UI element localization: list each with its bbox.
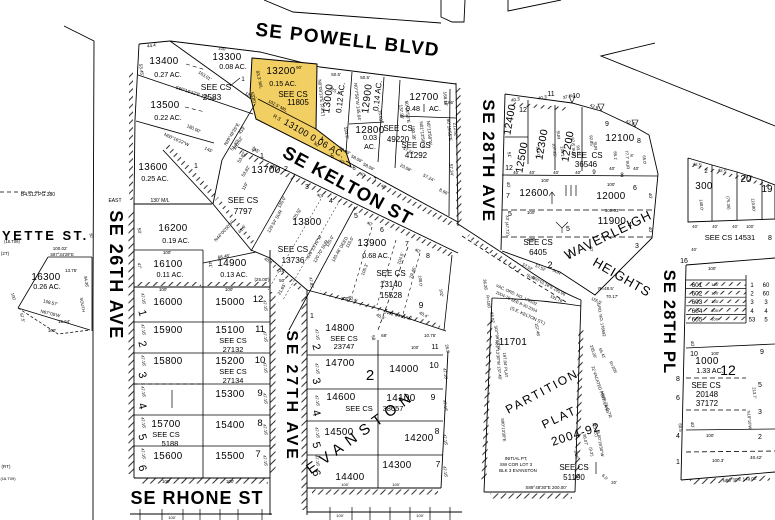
svg-text:12: 12 (505, 165, 513, 172)
svg-text:13900: 13900 (357, 238, 386, 249)
svg-text:SEE CS: SEE CS (201, 82, 232, 92)
svg-text:R=48.5': R=48.5' (598, 286, 614, 291)
svg-text:100': 100' (607, 182, 616, 187)
svg-text:6405: 6405 (529, 248, 547, 257)
svg-text:15300: 15300 (215, 389, 244, 400)
svg-text:SW COR LOT 3: SW COR LOT 3 (500, 462, 533, 467)
svg-text:100': 100' (162, 479, 171, 484)
svg-text:15400: 15400 (215, 420, 244, 431)
svg-text:15500: 15500 (215, 451, 244, 462)
svg-text:40': 40' (553, 170, 559, 175)
svg-text:114.0': 114.0' (536, 146, 542, 158)
svg-text:109.1': 109.1' (560, 146, 566, 158)
svg-text:100': 100' (168, 515, 176, 520)
svg-text:100': 100' (341, 296, 350, 301)
svg-text:13500: 13500 (150, 100, 179, 111)
svg-text:12: 12 (519, 107, 527, 114)
svg-text:100.03': 100.03' (605, 208, 620, 213)
svg-text:2: 2 (758, 434, 762, 441)
svg-text:BLK 3 EVANSTON: BLK 3 EVANSTON (499, 468, 537, 473)
svg-text:8': 8' (630, 153, 633, 158)
svg-text:1: 1 (194, 163, 198, 170)
svg-text:50': 50' (279, 278, 285, 283)
svg-text:S87°34'29"E: S87°34'29"E (50, 252, 74, 257)
svg-text:20': 20' (611, 480, 617, 485)
svg-text:3: 3 (305, 184, 309, 191)
svg-text:7797: 7797 (234, 206, 253, 216)
svg-text:40': 40' (513, 170, 519, 175)
svg-text:2: 2 (366, 367, 374, 384)
svg-text:10: 10 (429, 360, 439, 370)
svg-text:100': 100' (48, 328, 57, 333)
svg-text:20148: 20148 (696, 390, 719, 399)
svg-text:12: 12 (253, 294, 264, 305)
svg-text:0.68 AC.: 0.68 AC. (362, 251, 390, 260)
svg-text:85.1': 85.1' (613, 151, 619, 161)
svg-text:13600: 13600 (138, 162, 167, 173)
svg-text:B4.512 PG.380: B4.512 PG.380 (21, 192, 55, 198)
svg-text:27132: 27132 (223, 345, 244, 354)
svg-text:INITIAL PT,: INITIAL PT, (505, 456, 528, 461)
svg-text:100': 100' (336, 513, 344, 518)
svg-text:0.13 AC.: 0.13 AC. (220, 270, 248, 279)
svg-text:60: 60 (763, 283, 770, 289)
svg-text:AC.: AC. (429, 104, 441, 113)
svg-text:11805: 11805 (287, 98, 309, 107)
svg-text:6: 6 (380, 227, 384, 234)
svg-text:0.19 AC.: 0.19 AC. (162, 236, 190, 245)
svg-text:14800: 14800 (325, 323, 354, 334)
svg-text:100': 100' (392, 482, 400, 487)
svg-text:51': 51' (507, 151, 513, 158)
svg-text:8: 8 (257, 418, 262, 429)
svg-text:130' M/L: 130' M/L (150, 198, 169, 204)
svg-text:16000: 16000 (153, 297, 182, 308)
svg-text:13200: 13200 (266, 66, 295, 77)
svg-text:15900: 15900 (153, 325, 182, 336)
svg-text:53': 53' (137, 227, 143, 234)
svg-text:9: 9 (419, 300, 424, 310)
svg-text:16: 16 (680, 258, 688, 265)
svg-text:14400: 14400 (335, 472, 364, 483)
svg-text:12700: 12700 (409, 92, 438, 103)
svg-text:1: 1 (260, 153, 264, 160)
svg-text:100': 100' (411, 345, 419, 350)
svg-text:14300: 14300 (382, 460, 411, 471)
svg-text:70.17': 70.17' (606, 294, 618, 299)
svg-text:15600: 15600 (153, 451, 182, 462)
svg-text:SE 27TH AVE: SE 27TH AVE (283, 330, 300, 461)
svg-text:8.66': 8.66' (444, 100, 454, 105)
svg-text:CS: CS (591, 151, 602, 160)
svg-text:100': 100' (163, 250, 172, 255)
svg-text:12600: 12600 (519, 188, 548, 199)
svg-text:47': 47' (137, 262, 143, 269)
svg-text:SEE CS: SEE CS (345, 404, 373, 413)
svg-text:140.0': 140.0' (699, 199, 705, 211)
svg-text:40': 40' (690, 421, 696, 428)
svg-text:YETTE ST.: YETTE ST. (2, 228, 89, 243)
svg-text:0.27 AC.: 0.27 AC. (154, 70, 182, 79)
svg-text:37172: 37172 (696, 399, 719, 408)
svg-text:14000: 14000 (389, 364, 418, 375)
svg-text:604: 604 (692, 308, 703, 315)
svg-text:40': 40' (648, 192, 654, 199)
svg-text:100': 100' (416, 513, 424, 518)
svg-text:11: 11 (547, 91, 554, 98)
svg-text:40': 40' (529, 170, 535, 175)
svg-text:8: 8 (676, 376, 680, 383)
svg-text:100': 100' (711, 282, 719, 287)
svg-text:SUR: SUR (593, 141, 599, 150)
svg-text:100': 100' (541, 178, 550, 183)
svg-text:6: 6 (676, 395, 680, 402)
svg-text:60: 60 (763, 292, 770, 298)
svg-text:8: 8 (426, 253, 430, 260)
svg-text:213.7': 213.7' (752, 387, 758, 399)
svg-text:603: 603 (692, 299, 703, 306)
svg-text:100.0': 100.0' (418, 275, 424, 287)
svg-text:0.22 AC.: 0.22 AC. (154, 113, 182, 122)
svg-text:41': 41' (208, 261, 214, 268)
svg-text:15200: 15200 (215, 356, 244, 367)
svg-text:SEE CS 14531: SEE CS 14531 (705, 233, 755, 242)
svg-text:0.08 AC.: 0.08 AC. (219, 62, 247, 71)
svg-text:40': 40' (648, 226, 654, 233)
svg-text:40': 40' (712, 224, 718, 229)
svg-text:SE 28TH AVE: SE 28TH AVE (479, 99, 498, 222)
svg-text:S89°48'30"E 200.00': S89°48'30"E 200.00' (525, 485, 566, 490)
svg-text:27134: 27134 (223, 376, 244, 385)
svg-text:65.0': 65.0' (642, 155, 648, 165)
svg-text:9: 9 (760, 349, 764, 356)
svg-text:SEE CS: SEE CS (691, 381, 720, 390)
svg-text:601: 601 (692, 282, 703, 289)
svg-text:SE 26TH AVE: SE 26TH AVE (106, 210, 126, 340)
svg-text:53: 53 (749, 317, 756, 323)
svg-text:23747: 23747 (334, 342, 355, 351)
svg-text:40': 40' (575, 170, 581, 175)
svg-text:8: 8 (637, 138, 641, 145)
svg-text:SEE CS: SEE CS (219, 367, 247, 376)
svg-text:SEE CS: SEE CS (152, 430, 180, 439)
svg-text:15100: 15100 (215, 325, 244, 336)
svg-text:8: 8 (768, 235, 772, 242)
svg-text:3: 3 (758, 409, 762, 416)
svg-text:(16.T09): (16.T09) (0, 476, 16, 481)
svg-text:5: 5 (566, 226, 570, 233)
svg-text:40': 40' (692, 224, 698, 229)
svg-text:9: 9 (605, 121, 609, 128)
svg-text:100': 100' (706, 433, 715, 438)
svg-text:40': 40' (609, 166, 615, 171)
svg-text:0.11 AC.: 0.11 AC. (156, 270, 183, 279)
svg-text:14200: 14200 (404, 433, 433, 444)
svg-text:11: 11 (431, 344, 438, 351)
svg-text:11701: 11701 (499, 337, 528, 348)
svg-text:40': 40' (732, 224, 738, 229)
svg-text:6: 6 (633, 185, 637, 192)
svg-text:68': 68' (381, 333, 387, 338)
svg-text:15000: 15000 (215, 297, 244, 308)
svg-text:10.75': 10.75' (424, 333, 436, 338)
svg-text:100': 100' (708, 266, 717, 271)
svg-text:7: 7 (405, 241, 409, 248)
svg-text:12000: 12000 (596, 191, 625, 202)
svg-text:7: 7 (436, 459, 441, 469)
svg-text:300: 300 (695, 181, 713, 192)
svg-text:EAST: EAST (108, 198, 121, 204)
svg-text:14700: 14700 (325, 358, 354, 369)
svg-text:602: 602 (692, 291, 703, 298)
svg-text:13140: 13140 (380, 280, 403, 289)
svg-text:51190: 51190 (563, 473, 585, 482)
svg-text:40': 40' (506, 181, 512, 188)
svg-text:15528: 15528 (380, 291, 403, 300)
svg-text:9: 9 (257, 388, 262, 399)
svg-text:2: 2 (547, 260, 552, 270)
svg-text:14600: 14600 (326, 392, 355, 403)
svg-text:SEE CS: SEE CS (383, 124, 412, 133)
svg-text:SE RHONE ST: SE RHONE ST (130, 488, 263, 508)
svg-text:100.02': 100.02' (53, 246, 68, 251)
svg-text:5: 5 (354, 213, 358, 220)
svg-text:100': 100' (711, 316, 719, 321)
svg-text:100': 100' (159, 287, 168, 292)
svg-text:0.03: 0.03 (363, 133, 377, 142)
svg-text:33': 33' (505, 215, 510, 221)
svg-text:14900: 14900 (217, 258, 246, 269)
svg-text:AC.: AC. (364, 142, 376, 151)
svg-text:100.3': 100.3' (712, 458, 724, 463)
svg-text:12: 12 (720, 362, 736, 378)
svg-text:7: 7 (255, 449, 260, 460)
svg-text:SEE CS: SEE CS (278, 244, 309, 254)
svg-text:8: 8 (435, 426, 440, 436)
svg-text:13736: 13736 (281, 255, 304, 265)
svg-text:10: 10 (572, 93, 580, 100)
svg-text:0.26 AC.: 0.26 AC. (33, 282, 61, 291)
svg-text:60.5': 60.5' (678, 423, 684, 433)
svg-text:15.64': 15.64' (58, 319, 70, 324)
svg-text:25': 25' (279, 268, 285, 273)
svg-text:SEE CS: SEE CS (559, 463, 588, 472)
svg-text:90': 90' (296, 65, 302, 70)
svg-text:(2T): (2T) (1, 251, 10, 256)
svg-text:1: 1 (310, 313, 314, 320)
svg-text:100': 100' (527, 210, 536, 215)
svg-text:15800: 15800 (153, 356, 182, 367)
svg-text:40': 40' (633, 166, 639, 171)
svg-text:SEE CS: SEE CS (219, 336, 247, 345)
svg-text:0.15 AC.: 0.15 AC. (269, 79, 297, 88)
svg-text:SUR: SUR (556, 130, 562, 139)
svg-text:15700: 15700 (151, 419, 180, 430)
svg-text:100': 100' (225, 287, 234, 292)
svg-text:100': 100' (341, 482, 349, 487)
svg-text:SEE CS: SEE CS (523, 238, 552, 247)
svg-text:100': 100' (226, 479, 235, 484)
svg-text:SEE CS: SEE CS (376, 269, 405, 278)
svg-text:5: 5 (758, 382, 762, 389)
svg-text:48.42': 48.42' (750, 455, 762, 460)
svg-text:9: 9 (431, 392, 436, 402)
svg-text:16200: 16200 (158, 223, 187, 234)
svg-text:13.75': 13.75' (65, 268, 77, 273)
svg-text:2: 2 (284, 166, 288, 173)
svg-text:100': 100' (711, 291, 719, 296)
svg-text:13700: 13700 (251, 165, 280, 176)
svg-text:SE 28TH PL: SE 28TH PL (660, 270, 678, 375)
svg-text:1: 1 (676, 459, 680, 466)
svg-text:0.25 AC.: 0.25 AC. (141, 174, 169, 183)
svg-text:40': 40' (690, 340, 696, 347)
svg-text:(25.00'): (25.00') (254, 277, 270, 282)
svg-text:12100: 12100 (605, 133, 634, 144)
svg-text:4: 4 (676, 433, 680, 440)
svg-text:50.5': 50.5' (331, 72, 341, 77)
svg-text:19: 19 (762, 184, 773, 195)
svg-text:100': 100' (746, 224, 754, 229)
svg-text:SEE: SEE (571, 151, 587, 160)
svg-text:100': 100' (711, 308, 719, 313)
svg-text:4: 4 (329, 198, 333, 205)
svg-text:(RT): (RT) (2, 464, 11, 469)
svg-text:50.5': 50.5' (360, 75, 370, 80)
svg-text:SEE CS: SEE CS (228, 195, 259, 205)
svg-text:0.48: 0.48 (406, 104, 420, 113)
svg-text:605: 605 (692, 316, 703, 323)
svg-text:16100: 16100 (153, 259, 182, 270)
svg-text:13400: 13400 (149, 56, 178, 67)
svg-text:40': 40' (691, 247, 697, 252)
svg-text:36546: 36546 (575, 160, 598, 169)
svg-text:5188: 5188 (162, 439, 179, 448)
svg-text:3: 3 (635, 243, 639, 250)
svg-text:7: 7 (506, 193, 510, 200)
svg-text:100': 100' (711, 299, 719, 304)
